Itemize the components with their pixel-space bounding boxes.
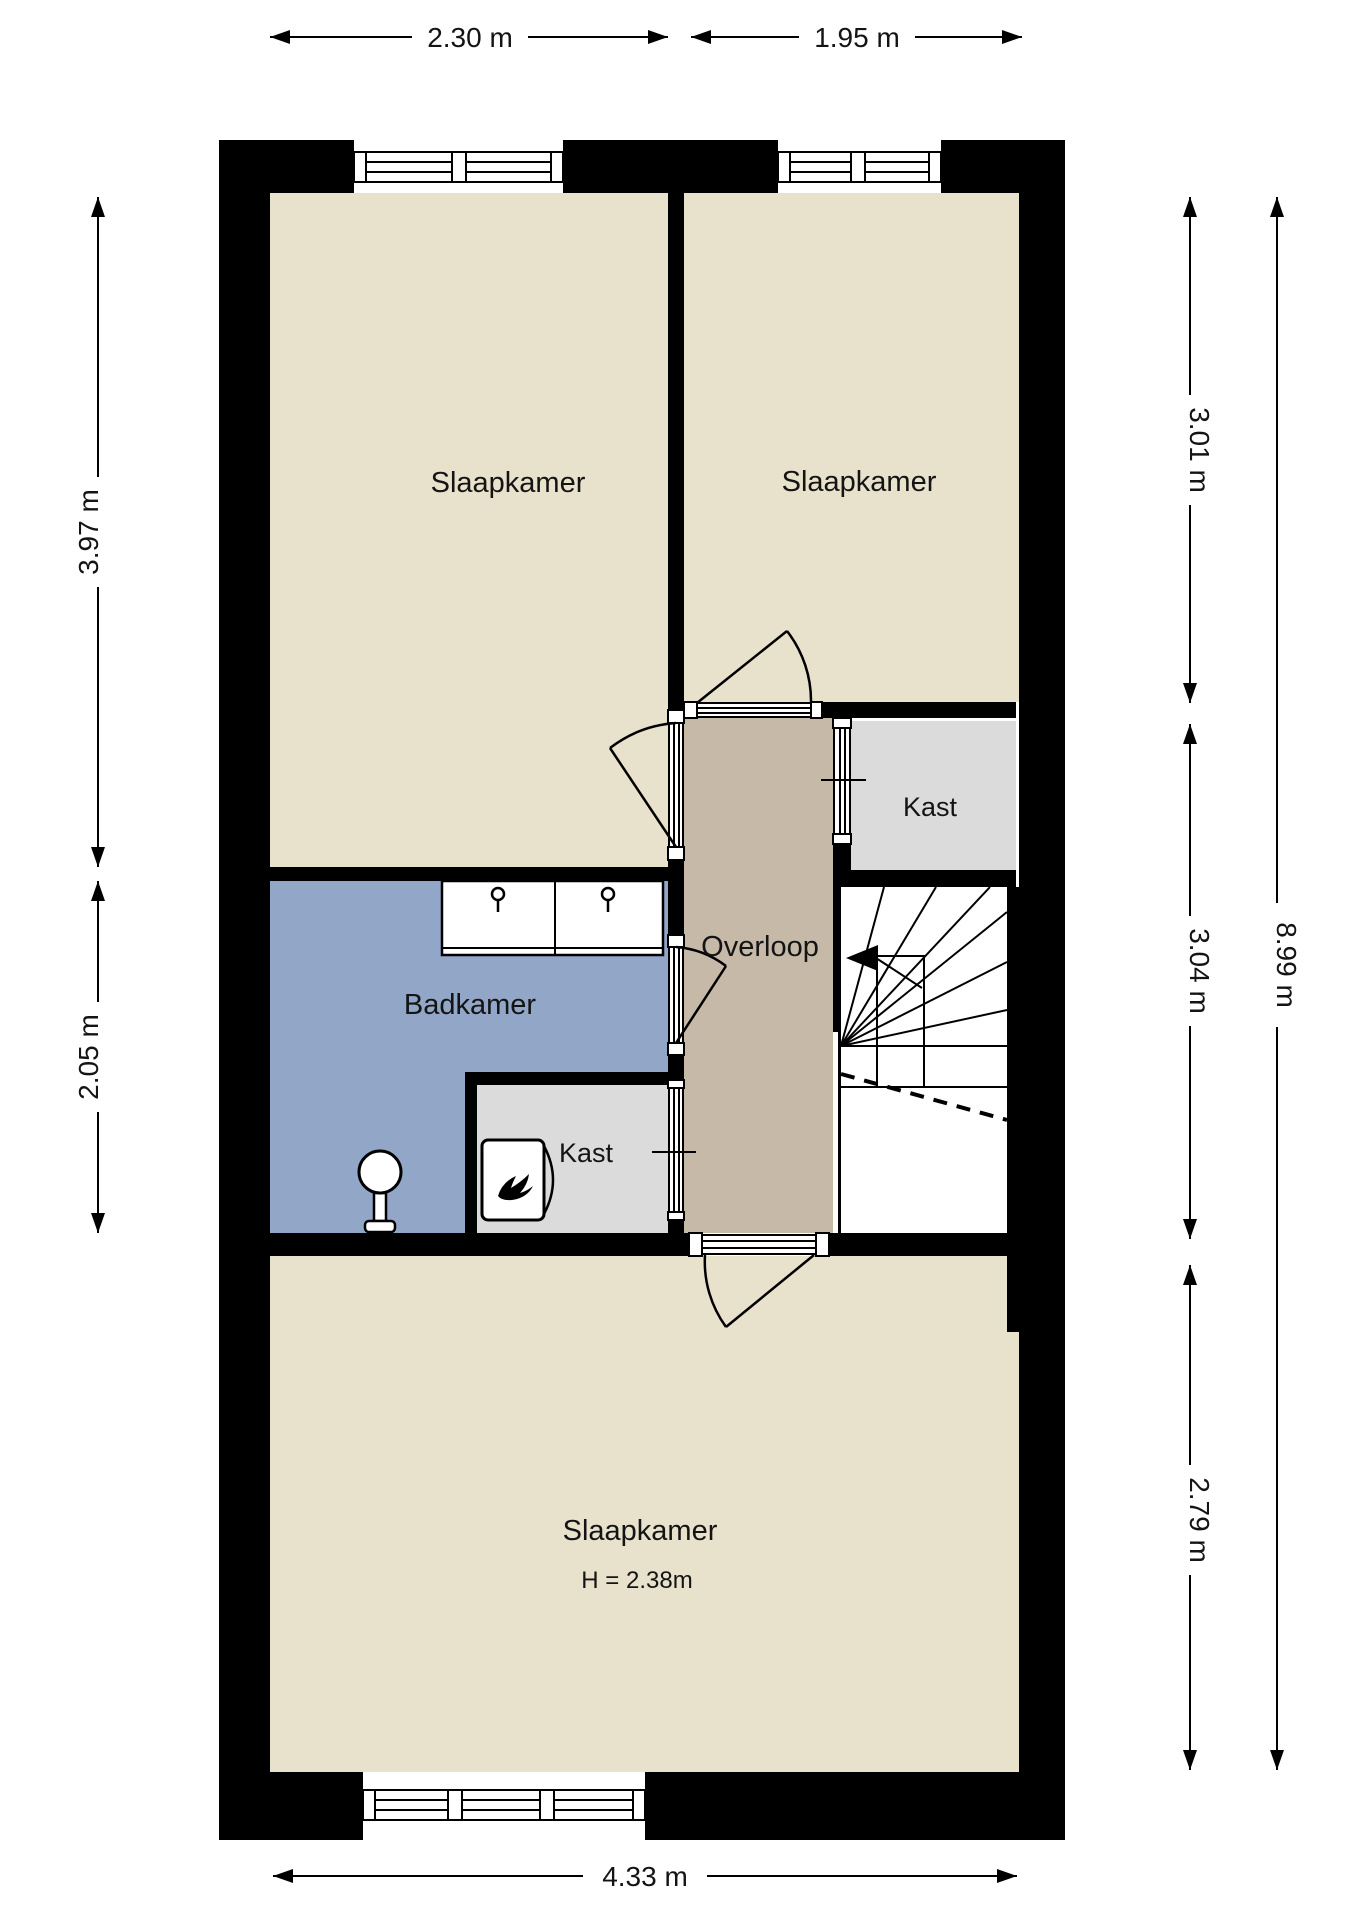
wall-landing-west-c — [668, 1220, 684, 1233]
bathroom-label: Badkamer — [404, 989, 537, 1021]
wall-closet-top-south — [851, 870, 1016, 887]
boiler — [482, 1140, 553, 1220]
window-bottom — [363, 1790, 645, 1820]
wall-bedroom-divider — [668, 140, 684, 710]
wall-closet-bottom-north — [477, 1072, 668, 1085]
dim-right-upper: 3.01 m — [1184, 407, 1215, 493]
wall-middle-south-right — [829, 1233, 1065, 1256]
wall-middle-south-left — [219, 1233, 689, 1256]
bedroom-top-left-floor — [270, 193, 668, 867]
bedroom-top-right-floor — [684, 193, 1019, 702]
bedroom-top-left-label: Slaapkamer — [431, 467, 586, 499]
faucet-icon — [492, 888, 504, 900]
dim-right-lower: 2.79 m — [1184, 1477, 1215, 1563]
window-top-left — [354, 152, 563, 182]
closet-bottom-label: Kast — [559, 1138, 614, 1168]
outer-wall-bottom-right — [645, 1772, 1065, 1840]
floor-plan-canvas: Slaapkamer Slaapkamer Kast Overloop Badk… — [0, 0, 1358, 1920]
wall-landing-stairs-rail — [838, 1032, 841, 1233]
window-top-right — [778, 152, 941, 182]
faucet-icon — [602, 888, 614, 900]
dim-left-lower: 2.05 m — [73, 1014, 104, 1100]
dim-top-right: 1.95 m — [814, 22, 900, 53]
wall-closet-bottom-west — [465, 1072, 477, 1233]
closet-top-label: Kast — [903, 792, 958, 822]
outer-wall-right-chimney — [1007, 887, 1065, 1332]
landing-floor — [684, 718, 833, 1233]
outer-wall-left — [219, 140, 270, 1840]
dim-left-upper: 3.97 m — [73, 489, 104, 575]
wall-bedroom-bathroom — [270, 867, 668, 881]
wall-landing-east-b — [833, 887, 841, 1032]
landing-label: Overloop — [701, 931, 819, 963]
bedroom-bottom-height-note: H = 2.38m — [581, 1567, 692, 1594]
dim-bottom: 4.33 m — [602, 1861, 688, 1892]
bedroom-bottom-label: Slaapkamer — [563, 1515, 718, 1547]
dim-top-left: 2.30 m — [427, 22, 513, 53]
dim-right-middle: 3.04 m — [1184, 928, 1215, 1014]
washbasin-counter — [442, 881, 663, 955]
wall-landing-west-a — [668, 860, 684, 935]
dim-right-total: 8.99 m — [1271, 922, 1302, 1008]
floor-plan-page: Slaapkamer Slaapkamer Kast Overloop Badk… — [0, 0, 1358, 1920]
bedroom-bottom-floor — [270, 1256, 1019, 1772]
wall-landing-east-a — [833, 844, 851, 887]
outer-wall-bottom-left — [219, 1772, 363, 1840]
bedroom-top-right-label: Slaapkamer — [782, 466, 937, 498]
